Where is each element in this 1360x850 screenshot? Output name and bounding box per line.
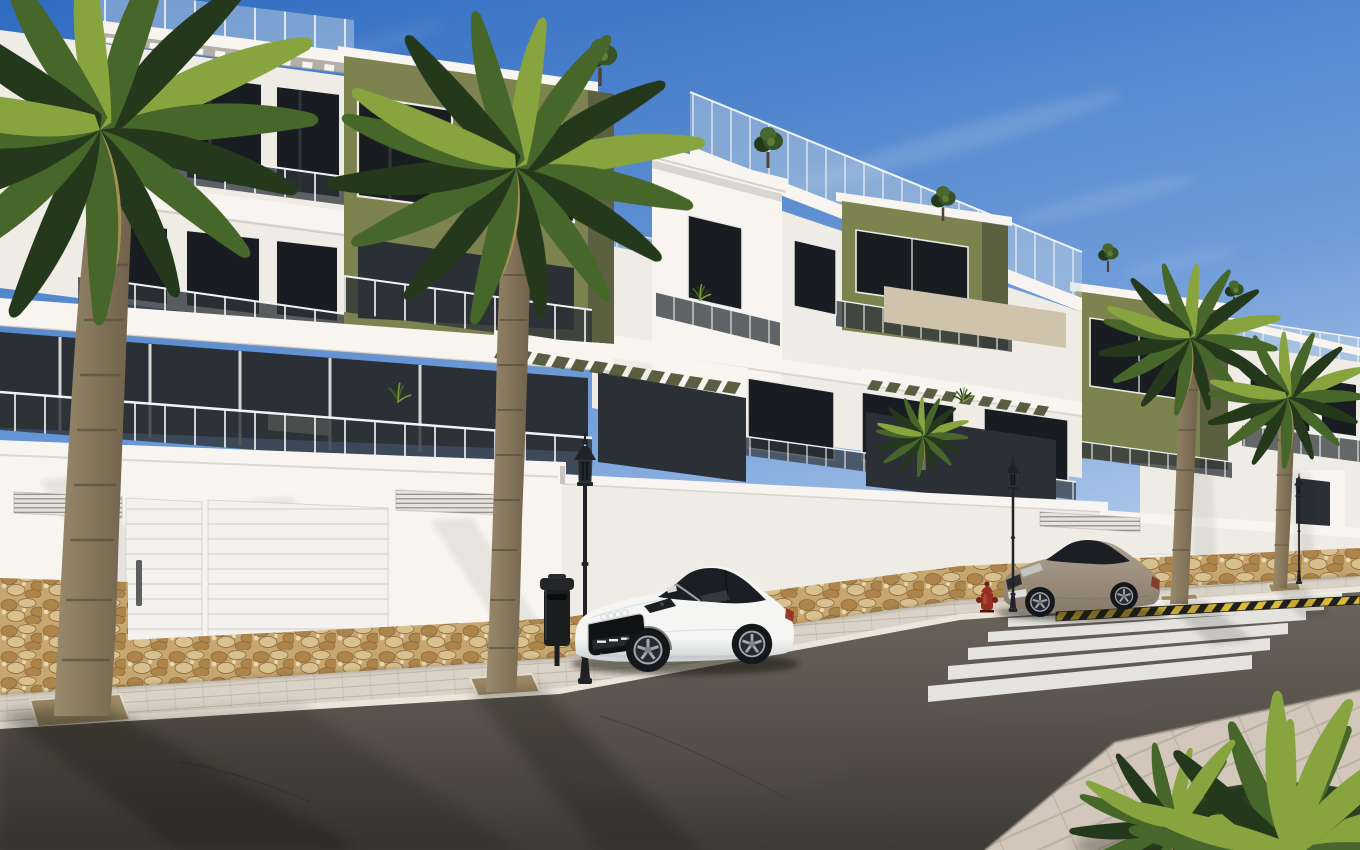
- render-stage: [0, 0, 1360, 850]
- door-handle: [136, 560, 142, 606]
- scene-render: [0, 0, 1360, 850]
